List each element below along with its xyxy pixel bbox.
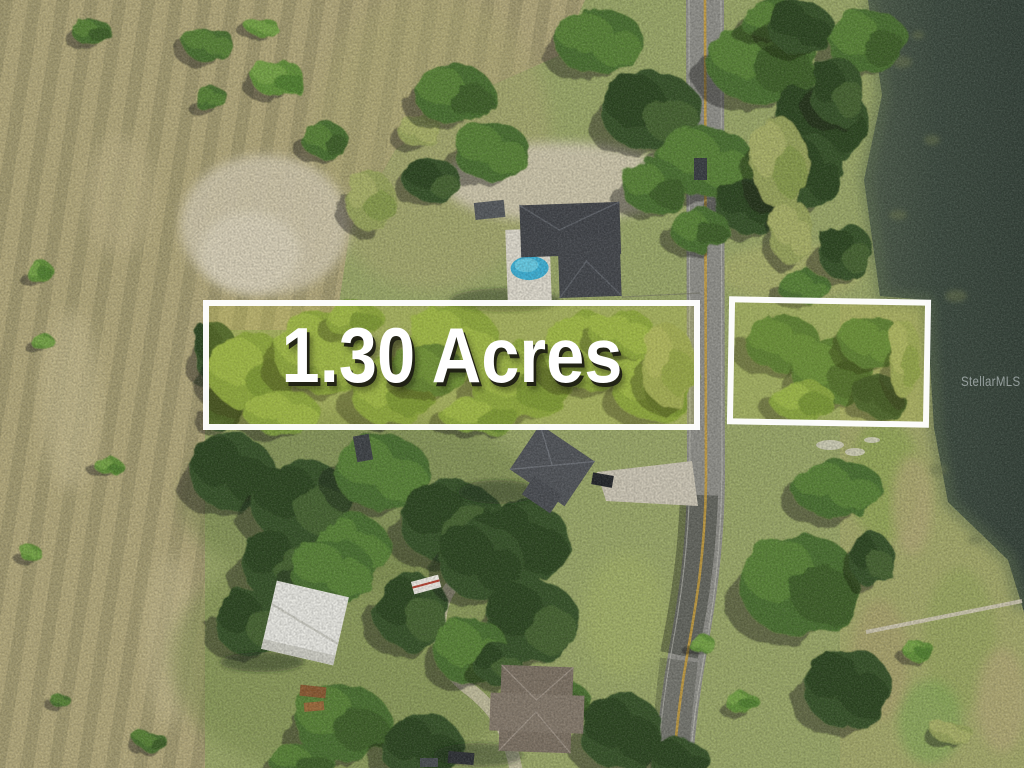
parcel-outline-secondary: [730, 299, 928, 424]
parcel-outline-main: [206, 303, 697, 427]
parcel-overlays: [206, 299, 928, 427]
aerial-photo: 1.30 Acres StellarMLS: [0, 0, 1024, 768]
aerial-photo-scene: [0, 0, 1024, 768]
